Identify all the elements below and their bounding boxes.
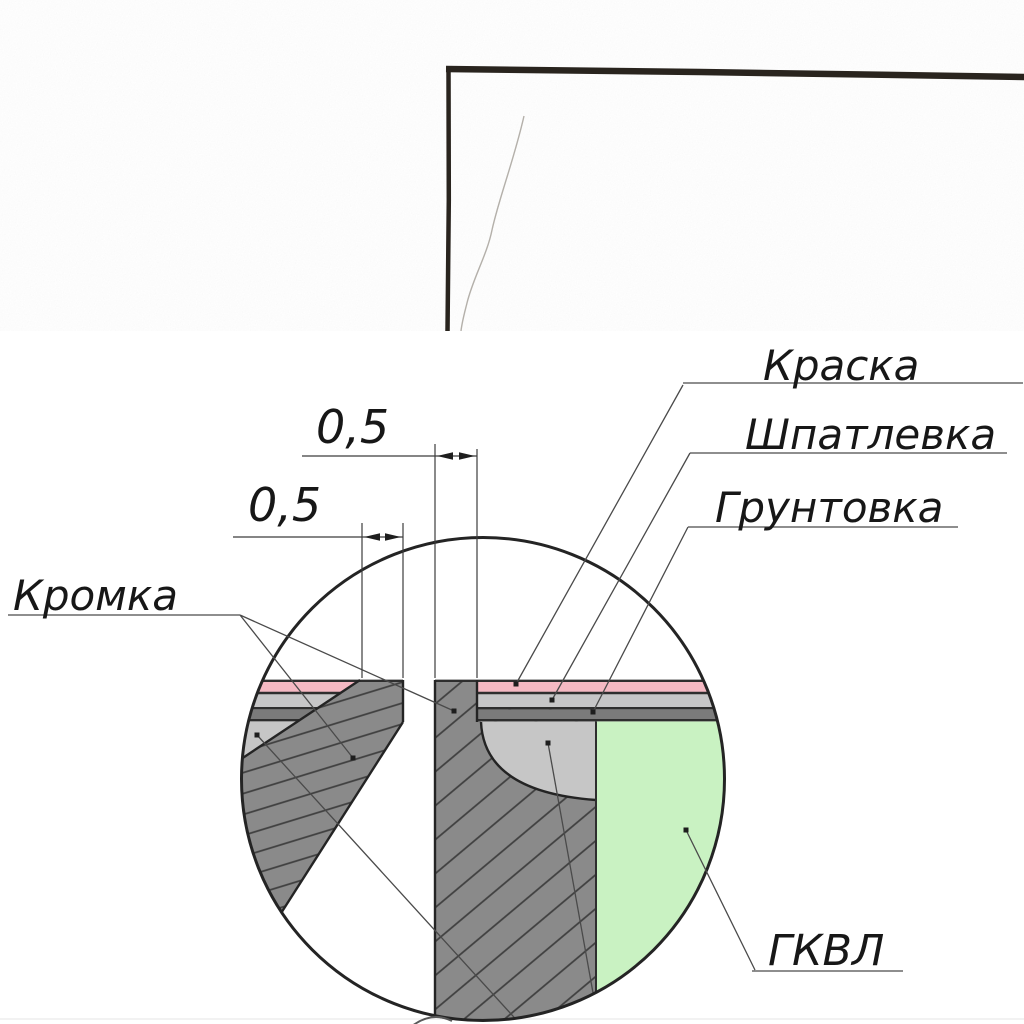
dimensions: 0,5 0,5: [233, 400, 477, 678]
arrow-left-icon: [364, 533, 380, 541]
detail-drawing: 0,5 0,5 Краска Шпатлевка Грунтовка Кромк…: [0, 0, 1024, 1024]
dot-edge-right: [452, 709, 457, 714]
arrow-left-icon: [437, 452, 453, 460]
arrow-right-icon: [385, 533, 401, 541]
label-filler: Шпатлевка: [745, 410, 996, 459]
detail-circle-content: [140, 680, 736, 1024]
dot-joint-filler-left: [255, 733, 260, 738]
primer-layer-right: [477, 710, 733, 720]
dot-paint: [514, 682, 519, 687]
dot-filler: [550, 698, 555, 703]
screenshot-root: 0,5 0,5 Краска Шпатлевка Грунтовка Кромк…: [0, 0, 1024, 1024]
label-paint: Краска: [763, 341, 919, 390]
board-core: [596, 722, 736, 1022]
dot-primer: [591, 710, 596, 715]
dim-value-bottom: 0,5: [248, 478, 321, 532]
dot-joint-filler-central: [546, 741, 551, 746]
dim-value-top: 0,5: [316, 400, 389, 454]
dot-edge-left: [351, 756, 356, 761]
paint-layer-left: [225, 682, 358, 693]
dot-board: [684, 828, 689, 833]
label-board: ГКВЛ: [768, 926, 884, 976]
label-primer: Грунтовка: [715, 483, 943, 532]
arrow-right-icon: [459, 452, 475, 460]
filler-layer-right: [477, 694, 733, 707]
label-edge: Кромка: [13, 571, 178, 620]
bottom-edge-band: [0, 1018, 1024, 1020]
dim-arrows: [364, 452, 475, 541]
